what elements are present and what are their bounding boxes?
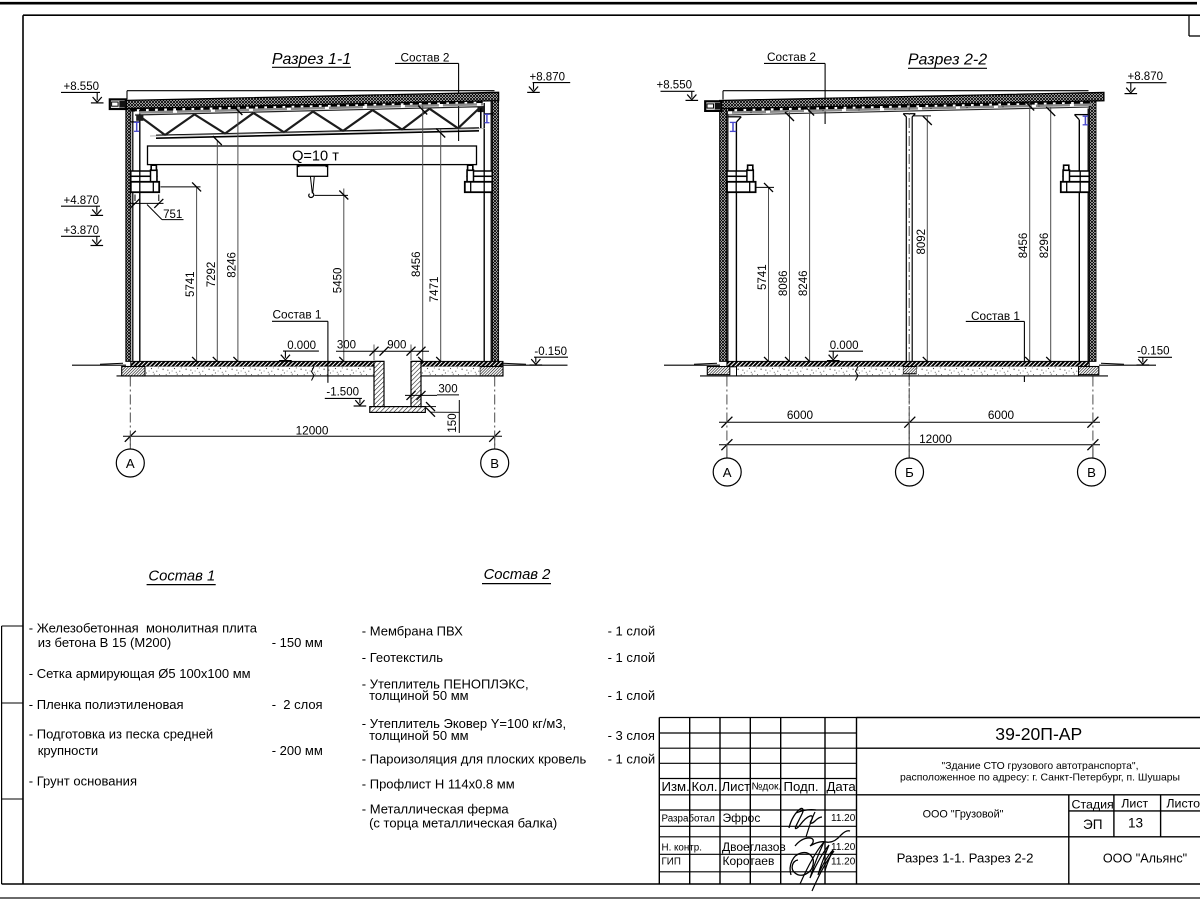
svg-text:- Железобетонная монолитная п: - Железобетонная монолитная плита — [29, 621, 258, 636]
svg-text:0.000: 0.000 — [830, 340, 859, 352]
svg-text:8456: 8456 — [411, 251, 423, 277]
svg-text:(с торца металлическая балка): (с торца металлическая балка) — [369, 816, 557, 831]
svg-text:11.20: 11.20 — [831, 813, 856, 824]
svg-text:5450: 5450 — [332, 268, 344, 294]
svg-text:- 1 слой: - 1 слой — [608, 688, 656, 703]
svg-text:толщиной 50 мм: толщиной 50 мм — [369, 728, 469, 743]
svg-text:Стадия: Стадия — [1072, 797, 1114, 811]
svg-text:В: В — [490, 456, 499, 471]
svg-text:11.20: 11.20 — [831, 842, 856, 853]
svg-text:ЭП: ЭП — [1083, 817, 1103, 832]
svg-text:5741: 5741 — [185, 271, 197, 297]
svg-text:Кол.: Кол. — [692, 779, 718, 794]
svg-text:- 150 мм: - 150 мм — [272, 635, 323, 650]
svg-text:12000: 12000 — [919, 432, 952, 446]
svg-text:- Грунт основания: - Грунт основания — [29, 774, 137, 789]
svg-text:Коротаев: Коротаев — [723, 854, 775, 868]
svg-text:- 1 слой: - 1 слой — [608, 752, 656, 767]
svg-text:А: А — [126, 456, 135, 471]
svg-text:- 3 слоя: - 3 слоя — [608, 728, 655, 743]
svg-text:Лист: Лист — [1121, 797, 1148, 811]
svg-text:7292: 7292 — [206, 262, 218, 288]
svg-text:11.20: 11.20 — [831, 856, 856, 867]
svg-text:Разрез 2-2: Разрез 2-2 — [908, 52, 987, 69]
svg-text:+8.550: +8.550 — [64, 81, 100, 93]
svg-text:- 200 мм: - 200 мм — [272, 743, 323, 758]
svg-text:Подп.: Подп. — [784, 779, 819, 794]
svg-text:- Профлист Н 114х0.8 мм: - Профлист Н 114х0.8 мм — [362, 777, 515, 792]
svg-text:+8.870: +8.870 — [1128, 71, 1164, 83]
svg-text:Состав 2: Состав 2 — [767, 50, 816, 64]
svg-text:Разрез 1-1: Разрез 1-1 — [272, 51, 351, 68]
svg-text:А: А — [723, 465, 732, 480]
svg-text:-0.150: -0.150 — [534, 346, 567, 358]
svg-text:39-20П-АР: 39-20П-АР — [995, 724, 1082, 744]
svg-text:Б: Б — [905, 465, 914, 480]
svg-text:5741: 5741 — [757, 264, 769, 290]
svg-text:13: 13 — [1128, 815, 1143, 830]
svg-text:Состав 2: Состав 2 — [484, 567, 552, 583]
svg-text:Изм.: Изм. — [662, 779, 690, 794]
svg-text:Дата: Дата — [827, 779, 857, 794]
svg-text:"Здание СТО грузового автотран: "Здание СТО грузового автотранспорта", — [942, 761, 1139, 772]
svg-text:-1.500: -1.500 — [326, 387, 359, 399]
svg-text:+4.870: +4.870 — [64, 195, 100, 207]
svg-text:Разработал: Разработал — [662, 814, 716, 825]
svg-text:6000: 6000 — [787, 408, 814, 422]
svg-text:12000: 12000 — [296, 423, 329, 437]
svg-text:- Пароизоляция для плоских кро: - Пароизоляция для плоских кровель — [362, 752, 587, 767]
svg-text:ООО "Грузовой": ООО "Грузовой" — [923, 809, 1004, 821]
svg-text:- 1 слой: - 1 слой — [608, 623, 656, 638]
svg-text:8246: 8246 — [798, 271, 810, 297]
svg-text:Состав 1: Состав 1 — [148, 569, 215, 585]
svg-text:- Сетка армирующая Ø5 100х100: - Сетка армирующая Ø5 100х100 мм — [29, 666, 251, 681]
svg-text:В: В — [1087, 465, 1096, 480]
svg-text:+8.550: +8.550 — [657, 80, 693, 92]
svg-text:- 2 слоя: - 2 слоя — [272, 697, 323, 712]
svg-text:- 1 слой: - 1 слой — [608, 650, 656, 665]
svg-text:8246: 8246 — [226, 252, 238, 278]
svg-text:0.000: 0.000 — [287, 340, 316, 352]
svg-text:900: 900 — [387, 340, 406, 352]
svg-text:150: 150 — [447, 413, 459, 432]
svg-text:Двоеглазов: Двоеглазов — [722, 840, 786, 854]
svg-text:ГИП: ГИП — [662, 857, 681, 868]
svg-text:Q=10 т: Q=10 т — [292, 148, 339, 164]
svg-text:Н. контр.: Н. контр. — [662, 843, 702, 854]
svg-text:толщиной 50 мм: толщиной 50 мм — [369, 688, 469, 703]
svg-text:751: 751 — [163, 209, 182, 221]
svg-text:расположенное по адресу: г. Са: расположенное по адресу: г. Санкт-Петерб… — [900, 771, 1180, 783]
svg-text:300: 300 — [438, 384, 457, 396]
svg-text:7471: 7471 — [429, 277, 441, 303]
svg-text:Лист: Лист — [722, 779, 751, 794]
svg-text:Разрез 1-1. Разрез 2-2: Разрез 1-1. Разрез 2-2 — [897, 850, 1034, 865]
svg-text:6000: 6000 — [988, 408, 1015, 422]
svg-text:- Геотекстиль: - Геотекстиль — [362, 650, 443, 665]
svg-text:8456: 8456 — [1018, 233, 1030, 259]
svg-text:+8.870: +8.870 — [530, 71, 566, 83]
svg-text:300: 300 — [337, 340, 356, 352]
svg-text:№док.: №док. — [752, 782, 782, 793]
svg-text:- Пленка полиэтиленовая: - Пленка полиэтиленовая — [29, 697, 184, 712]
svg-text:8296: 8296 — [1039, 233, 1051, 259]
svg-text:+3.870: +3.870 — [64, 225, 100, 237]
svg-text:8092: 8092 — [916, 229, 928, 255]
svg-text:Состав 1: Состав 1 — [273, 308, 322, 322]
svg-text:Листов: Листов — [1166, 797, 1200, 811]
svg-text:- Мембрана ПВХ: - Мембрана ПВХ — [362, 623, 463, 638]
svg-text:-0.150: -0.150 — [1137, 346, 1170, 358]
svg-text:Состав 2: Состав 2 — [401, 50, 450, 64]
svg-text:8086: 8086 — [778, 271, 790, 297]
svg-text:крупности: крупности — [38, 743, 98, 758]
svg-text:- Металлическая ферма: - Металлическая ферма — [362, 802, 510, 817]
svg-text:Эфрос: Эфрос — [723, 811, 761, 825]
svg-text:ООО "Альянс": ООО "Альянс" — [1103, 851, 1187, 865]
svg-text:- Подготовка из песка средней: - Подготовка из песка средней — [29, 727, 213, 742]
svg-text:из бетона В 15 (М200): из бетона В 15 (М200) — [38, 635, 172, 650]
